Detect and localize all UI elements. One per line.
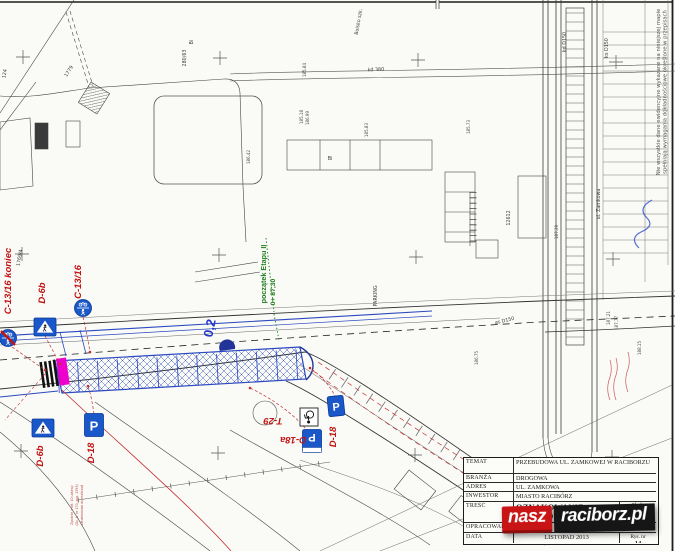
elevation-label: 185.73 [466, 120, 471, 134]
utility-label: øs D150 [494, 316, 515, 327]
parcel-label: 1779 [63, 65, 75, 79]
utility-label: ks D150 [604, 38, 610, 58]
sign-label-d18a: D-18a [280, 434, 306, 445]
parking-label: PARKING [373, 285, 379, 306]
legal-note-line: Zgodnie z art. 10 ustawy [70, 485, 74, 525]
elevation-label: 186.99 [305, 111, 310, 125]
watermark-word-raciborz: raciborz.pl [554, 503, 655, 532]
title-block-label-temat: TEMAT [464, 458, 514, 474]
elevation-label: 188.15 [637, 341, 642, 355]
parcel-label: 1769/4 [16, 249, 25, 267]
parking-bays [55, 347, 306, 393]
street-name-label: ul. Zamkowa [596, 189, 602, 220]
title-block-value-inwestor: MIASTO RACIBÓRZ [514, 492, 656, 502]
title-block-value-data: LISTOPAD 2013 [514, 533, 620, 543]
disclaimer-line: Nie wszystkie dane ewidencyjne wykazane … [656, 9, 662, 176]
sign-c13-16-icon [75, 300, 92, 317]
sign-label-d6b: D-6b [35, 445, 46, 466]
elevation-label: 187.39 [554, 225, 559, 239]
red-stamp-scribble [608, 352, 630, 400]
title-block-value-branza: DROGOWA [514, 474, 656, 483]
marking-width-label: 0,2 [200, 318, 218, 339]
elevation-label: 185.18 [299, 110, 304, 124]
elevation-label: 185.83 [364, 123, 369, 137]
title-block-label-inwestor: INWESTOR [464, 492, 514, 502]
landuse-label: Bi [189, 40, 195, 45]
sign-label-d6b: D-6b [37, 282, 48, 303]
sign-c13-16-end-icon [0, 330, 17, 347]
sign-d6b-icon [32, 419, 54, 437]
survey-cross-grid [14, 50, 623, 464]
stage-start-chainage: 0+ 87,30 [270, 278, 277, 305]
title-block-label-adres: ADRES [464, 483, 514, 492]
sign-d6b-icon [34, 318, 56, 336]
utility-label: kd 380 [368, 67, 385, 74]
sign-d18-parking-icon: P [327, 395, 345, 417]
landuse-label: Bi [328, 156, 333, 162]
elevation-label: 186.42 [246, 150, 251, 164]
sign-d18-parking-icon: P [85, 414, 104, 437]
legal-note-line: (Dz. U. nr 170, poz. 1393) [75, 484, 79, 525]
plate-t29-wheelchair-icon [300, 408, 318, 426]
legal-note-line: zatwierdzam do realizacji [80, 485, 84, 526]
landuse-label: Boisko szk. [354, 8, 365, 35]
map-accuracy-disclaimer: Nie wszystkie dane ewidencyjne wykazane … [656, 9, 669, 176]
site-plan-scan: 124 1769/4 1779 280/63 Bi Bi Boisko szk.… [0, 0, 675, 551]
sign-label-c13-16: C-13/16 [73, 264, 84, 299]
elevation-label: 186.75 [474, 351, 479, 365]
elevation-label: 185.84 [302, 63, 307, 77]
watermark-word-nasz: nasz [502, 506, 553, 534]
sign-p-letter: P [332, 401, 341, 414]
title-block-drawing-number: Rys. nr 14 [620, 533, 656, 543]
title-block-value-temat: PRZEBUDOWA UL. ZAMKOWEJ W RACIBORZU [514, 458, 656, 474]
stage-start-annotation: początek Etapu II 0+ 87,30 [259, 238, 279, 340]
sign-p-letter: P [90, 419, 99, 434]
drawing-number-value: 14 [635, 540, 642, 543]
sign-label-t29: T-29 [263, 415, 283, 426]
sign-label-d18: D-18 [328, 426, 339, 447]
stage-start-label: początek Etapu II [259, 245, 268, 304]
sign-label-c13-16-koniec: C-13/16 koniec [3, 247, 14, 314]
roadway-half-disc [219, 339, 235, 351]
sign-p-letter: P [308, 431, 315, 443]
utility-label: kd D150 [562, 32, 568, 52]
elevation-label: 187.77 [614, 316, 619, 330]
parcel-label: 12612 [506, 210, 512, 225]
elevation-label: 187.21 [606, 311, 611, 325]
site-watermark: nasz raciborz.pl [502, 503, 655, 533]
title-block-label-data: DATA [464, 533, 514, 543]
parcel-label: 124 [1, 69, 8, 79]
title-block-value-adres: UL. ZAMKOWA [514, 483, 656, 492]
disclaimer-line: spełniają wymagania dokładnościowe okreś… [662, 10, 669, 174]
approval-legal-note: Zgodnie z art. 10 ustawy (Dz. U. nr 170,… [70, 484, 84, 525]
sign-label-d18: D-18 [86, 442, 97, 463]
title-block-label-branza: BRANŻA [464, 474, 514, 483]
parcel-label: 280/63 [182, 50, 188, 67]
